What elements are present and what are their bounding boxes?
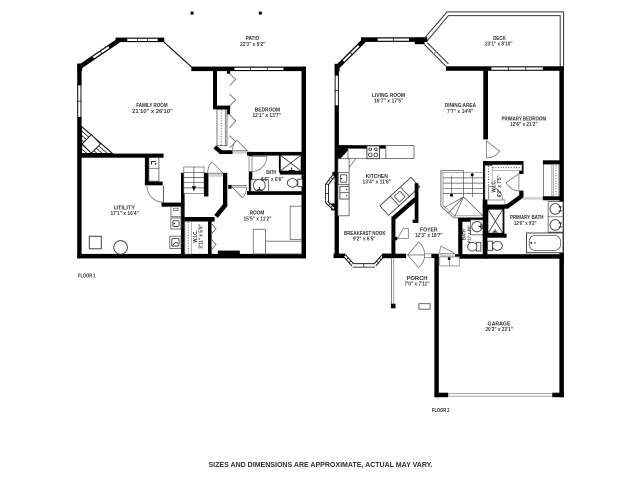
svg-text:4'11" x 4'6": 4'11" x 4'6" (466, 225, 471, 243)
svg-text:FLOOR 2: FLOOR 2 (432, 408, 450, 414)
svg-text:12'3" x 18'7": 12'3" x 18'7" (415, 233, 443, 239)
svg-text:9'2" x 6'5": 9'2" x 6'5" (353, 237, 376, 243)
svg-text:23'1" x 8'10": 23'1" x 8'10" (485, 41, 513, 47)
svg-text:7'0" x 7'11": 7'0" x 7'11" (405, 282, 430, 288)
svg-text:17'1" x 16'4": 17'1" x 16'4" (110, 211, 139, 217)
svg-text:PATIO: PATIO (246, 36, 260, 42)
svg-text:12'1" x 13'7": 12'1" x 13'7" (252, 113, 281, 119)
svg-text:12'6" x 21'2": 12'6" x 21'2" (510, 122, 538, 128)
svg-text:16'7" x 17'5": 16'7" x 17'5" (374, 99, 404, 105)
svg-text:8'6" x 6'6": 8'6" x 6'6" (261, 177, 284, 183)
svg-text:FLOOR 1: FLOOR 1 (78, 273, 96, 279)
svg-text:12'6" x 9'2": 12'6" x 9'2" (514, 221, 537, 227)
svg-text:20'3" x 23'1": 20'3" x 23'1" (485, 327, 513, 333)
svg-text:13'4" x 11'8": 13'4" x 11'8" (363, 179, 392, 185)
svg-text:3'11" x 5'9": 3'11" x 5'9" (199, 224, 205, 249)
svg-text:BATH: BATH (266, 170, 276, 176)
svg-text:7'7" x 14'4": 7'7" x 14'4" (447, 109, 474, 115)
svg-text:SIZES AND DIMENSIONS ARE APPRO: SIZES AND DIMENSIONS ARE APPROXIMATE, AC… (209, 462, 433, 469)
svg-text:15'5" x 11'2": 15'5" x 11'2" (244, 216, 272, 222)
svg-text:21'10" x 26'10": 21'10" x 26'10" (132, 109, 173, 115)
svg-text:22'3" x 9'2": 22'3" x 9'2" (240, 42, 266, 48)
svg-text:6'9" x 7'5": 6'9" x 7'5" (497, 175, 503, 198)
